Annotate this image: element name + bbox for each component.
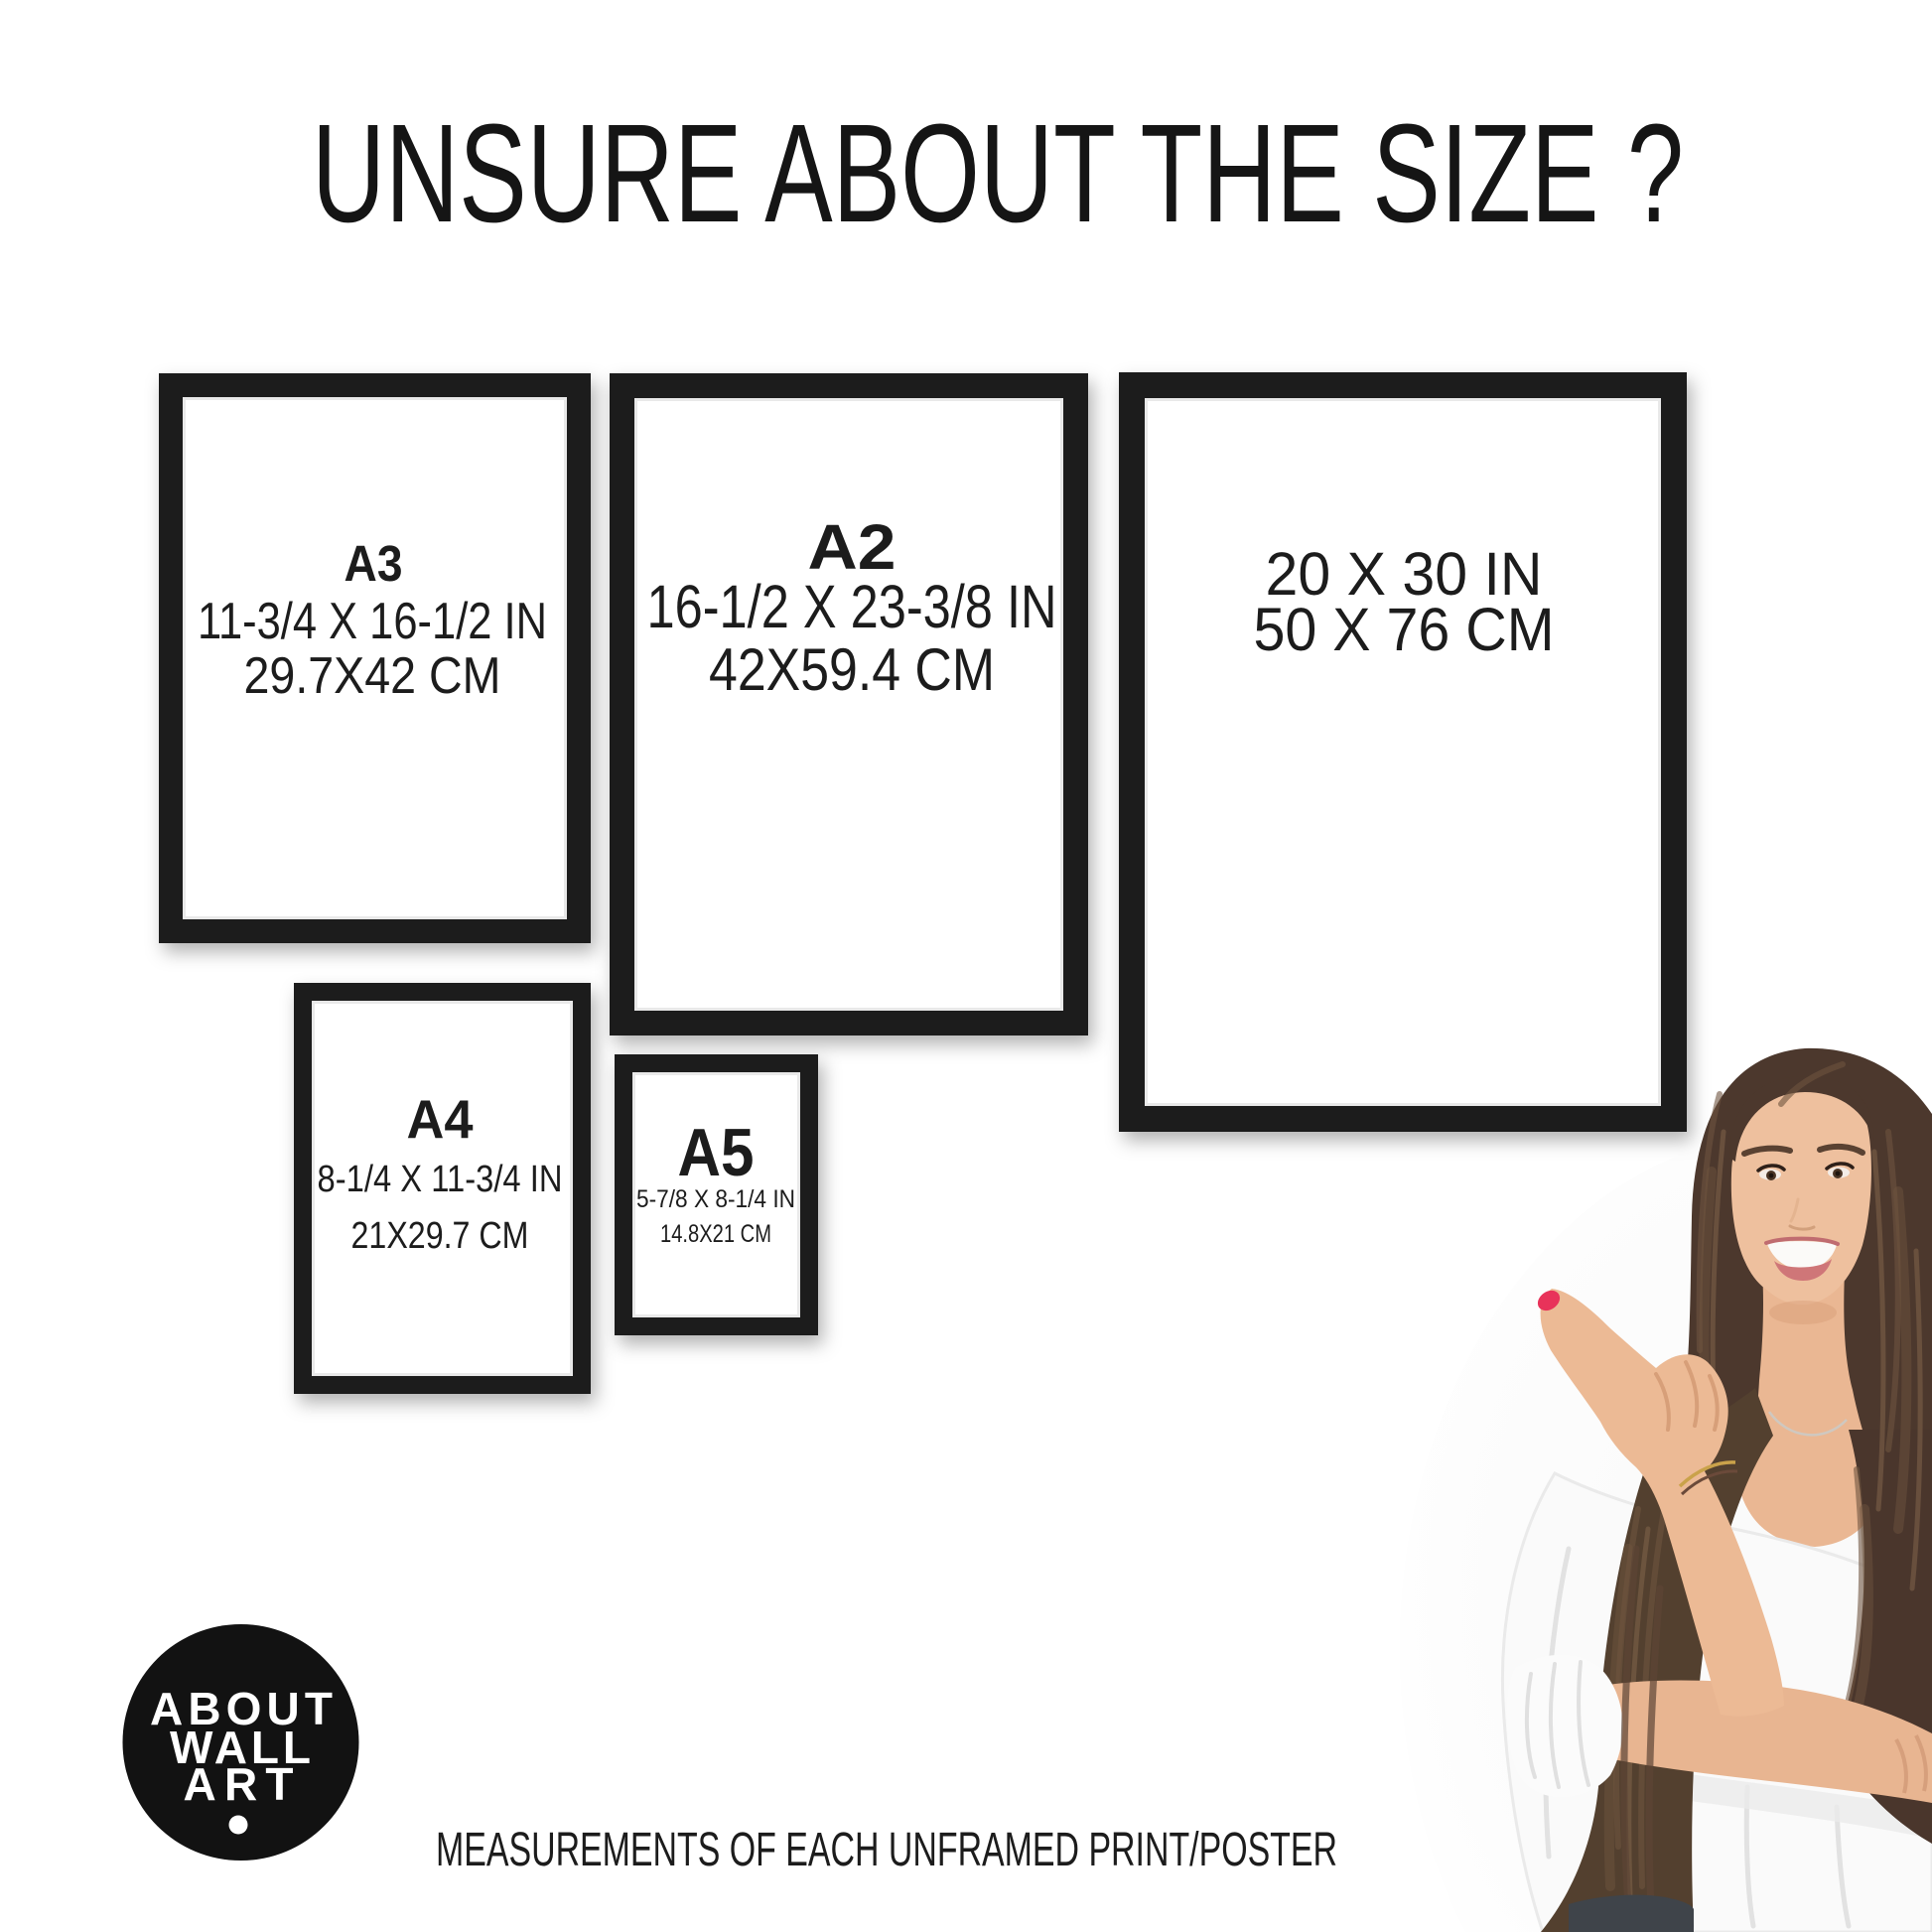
svg-text:A5: A5: [678, 1115, 755, 1190]
svg-text:MEASUREMENTS OF EACH UNFRAMED: MEASUREMENTS OF EACH UNFRAMED PRINT/POST…: [436, 1824, 1337, 1876]
svg-text:50 X 76 CM: 50 X 76 CM: [1254, 596, 1555, 663]
svg-text:8-1/4 X 11-3/4 IN: 8-1/4 X 11-3/4 IN: [318, 1159, 563, 1200]
svg-text:UNSURE ABOUT THE SIZE ?: UNSURE ABOUT THE SIZE ?: [312, 94, 1684, 251]
svg-text:42X59.4 CM: 42X59.4 CM: [709, 636, 995, 703]
svg-text:16-1/2 X 23-3/8 IN: 16-1/2 X 23-3/8 IN: [647, 573, 1057, 640]
svg-text:11-3/4 X 16-1/2 IN: 11-3/4 X 16-1/2 IN: [198, 593, 547, 650]
svg-text:14.8X21 CM: 14.8X21 CM: [660, 1220, 771, 1248]
svg-text:5-7/8 X 8-1/4 IN: 5-7/8 X 8-1/4 IN: [636, 1185, 795, 1213]
svg-text:21X29.7 CM: 21X29.7 CM: [351, 1215, 529, 1257]
svg-text:29.7X42 CM: 29.7X42 CM: [244, 647, 501, 705]
svg-text:ART: ART: [184, 1758, 294, 1810]
svg-text:A3: A3: [345, 535, 403, 592]
svg-text:A4: A4: [407, 1088, 474, 1150]
